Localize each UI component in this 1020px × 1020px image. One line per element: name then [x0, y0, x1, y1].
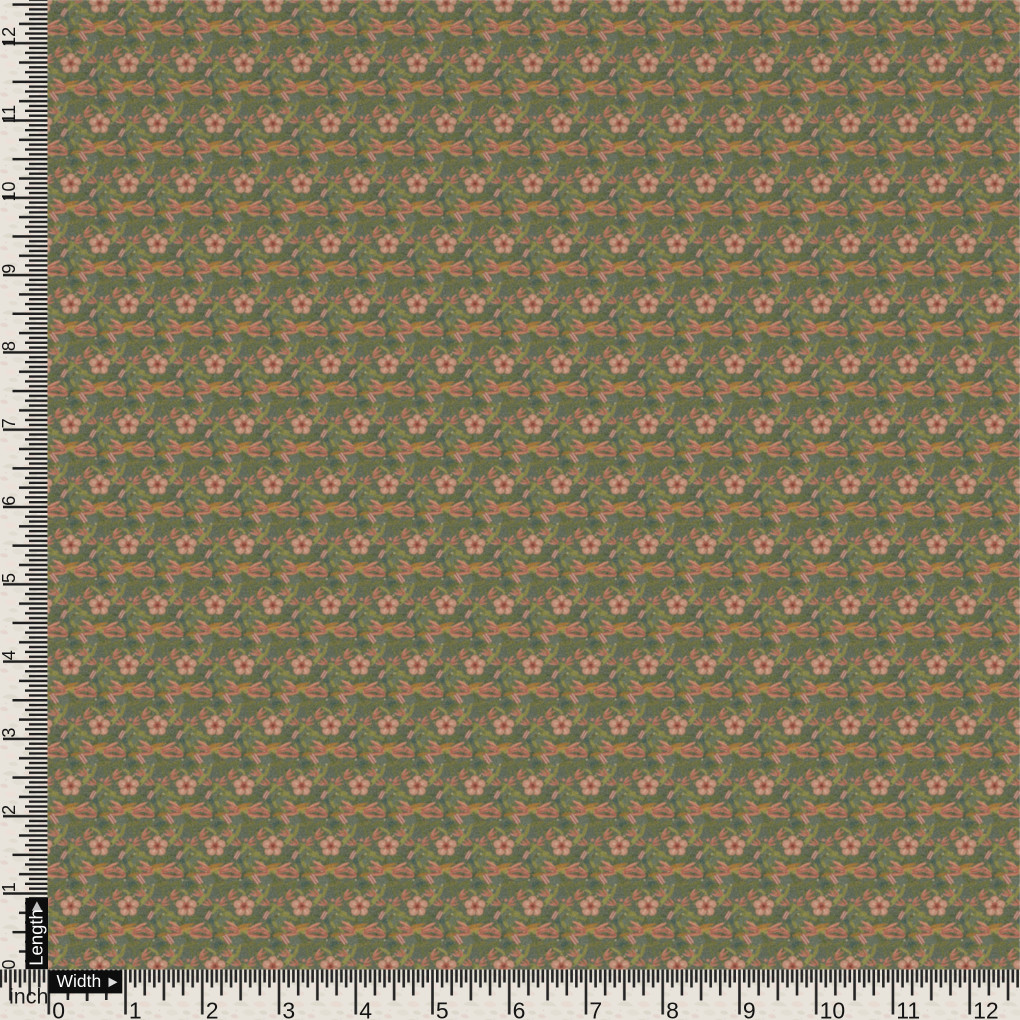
svg-text:inch: inch — [9, 985, 48, 1009]
svg-text:12: 12 — [0, 27, 19, 47]
svg-text:8: 8 — [666, 998, 679, 1020]
svg-text:0: 0 — [52, 998, 65, 1020]
svg-text:11: 11 — [896, 998, 920, 1020]
svg-text:5: 5 — [0, 573, 19, 583]
svg-text:5: 5 — [436, 998, 449, 1020]
svg-text:10: 10 — [0, 181, 19, 201]
svg-text:6: 6 — [513, 998, 526, 1020]
svg-text:3: 3 — [282, 998, 295, 1020]
svg-text:Length: Length — [26, 909, 47, 966]
svg-text:7: 7 — [0, 418, 19, 428]
svg-text:2: 2 — [0, 805, 19, 815]
svg-text:Width: Width — [57, 971, 102, 991]
svg-text:9: 9 — [0, 264, 19, 274]
svg-text:1: 1 — [129, 998, 142, 1020]
svg-text:9: 9 — [743, 998, 756, 1020]
svg-text:2: 2 — [206, 998, 219, 1020]
svg-text:8: 8 — [0, 341, 19, 351]
svg-text:0: 0 — [0, 959, 19, 969]
svg-text:12: 12 — [973, 998, 999, 1020]
svg-text:10: 10 — [820, 998, 846, 1020]
svg-text:1: 1 — [0, 882, 19, 892]
svg-text:4: 4 — [0, 650, 19, 660]
svg-text:7: 7 — [589, 998, 602, 1020]
svg-text:6: 6 — [0, 496, 19, 506]
svg-text:4: 4 — [359, 998, 372, 1020]
svg-text:3: 3 — [0, 728, 19, 738]
svg-text:11: 11 — [0, 105, 19, 124]
